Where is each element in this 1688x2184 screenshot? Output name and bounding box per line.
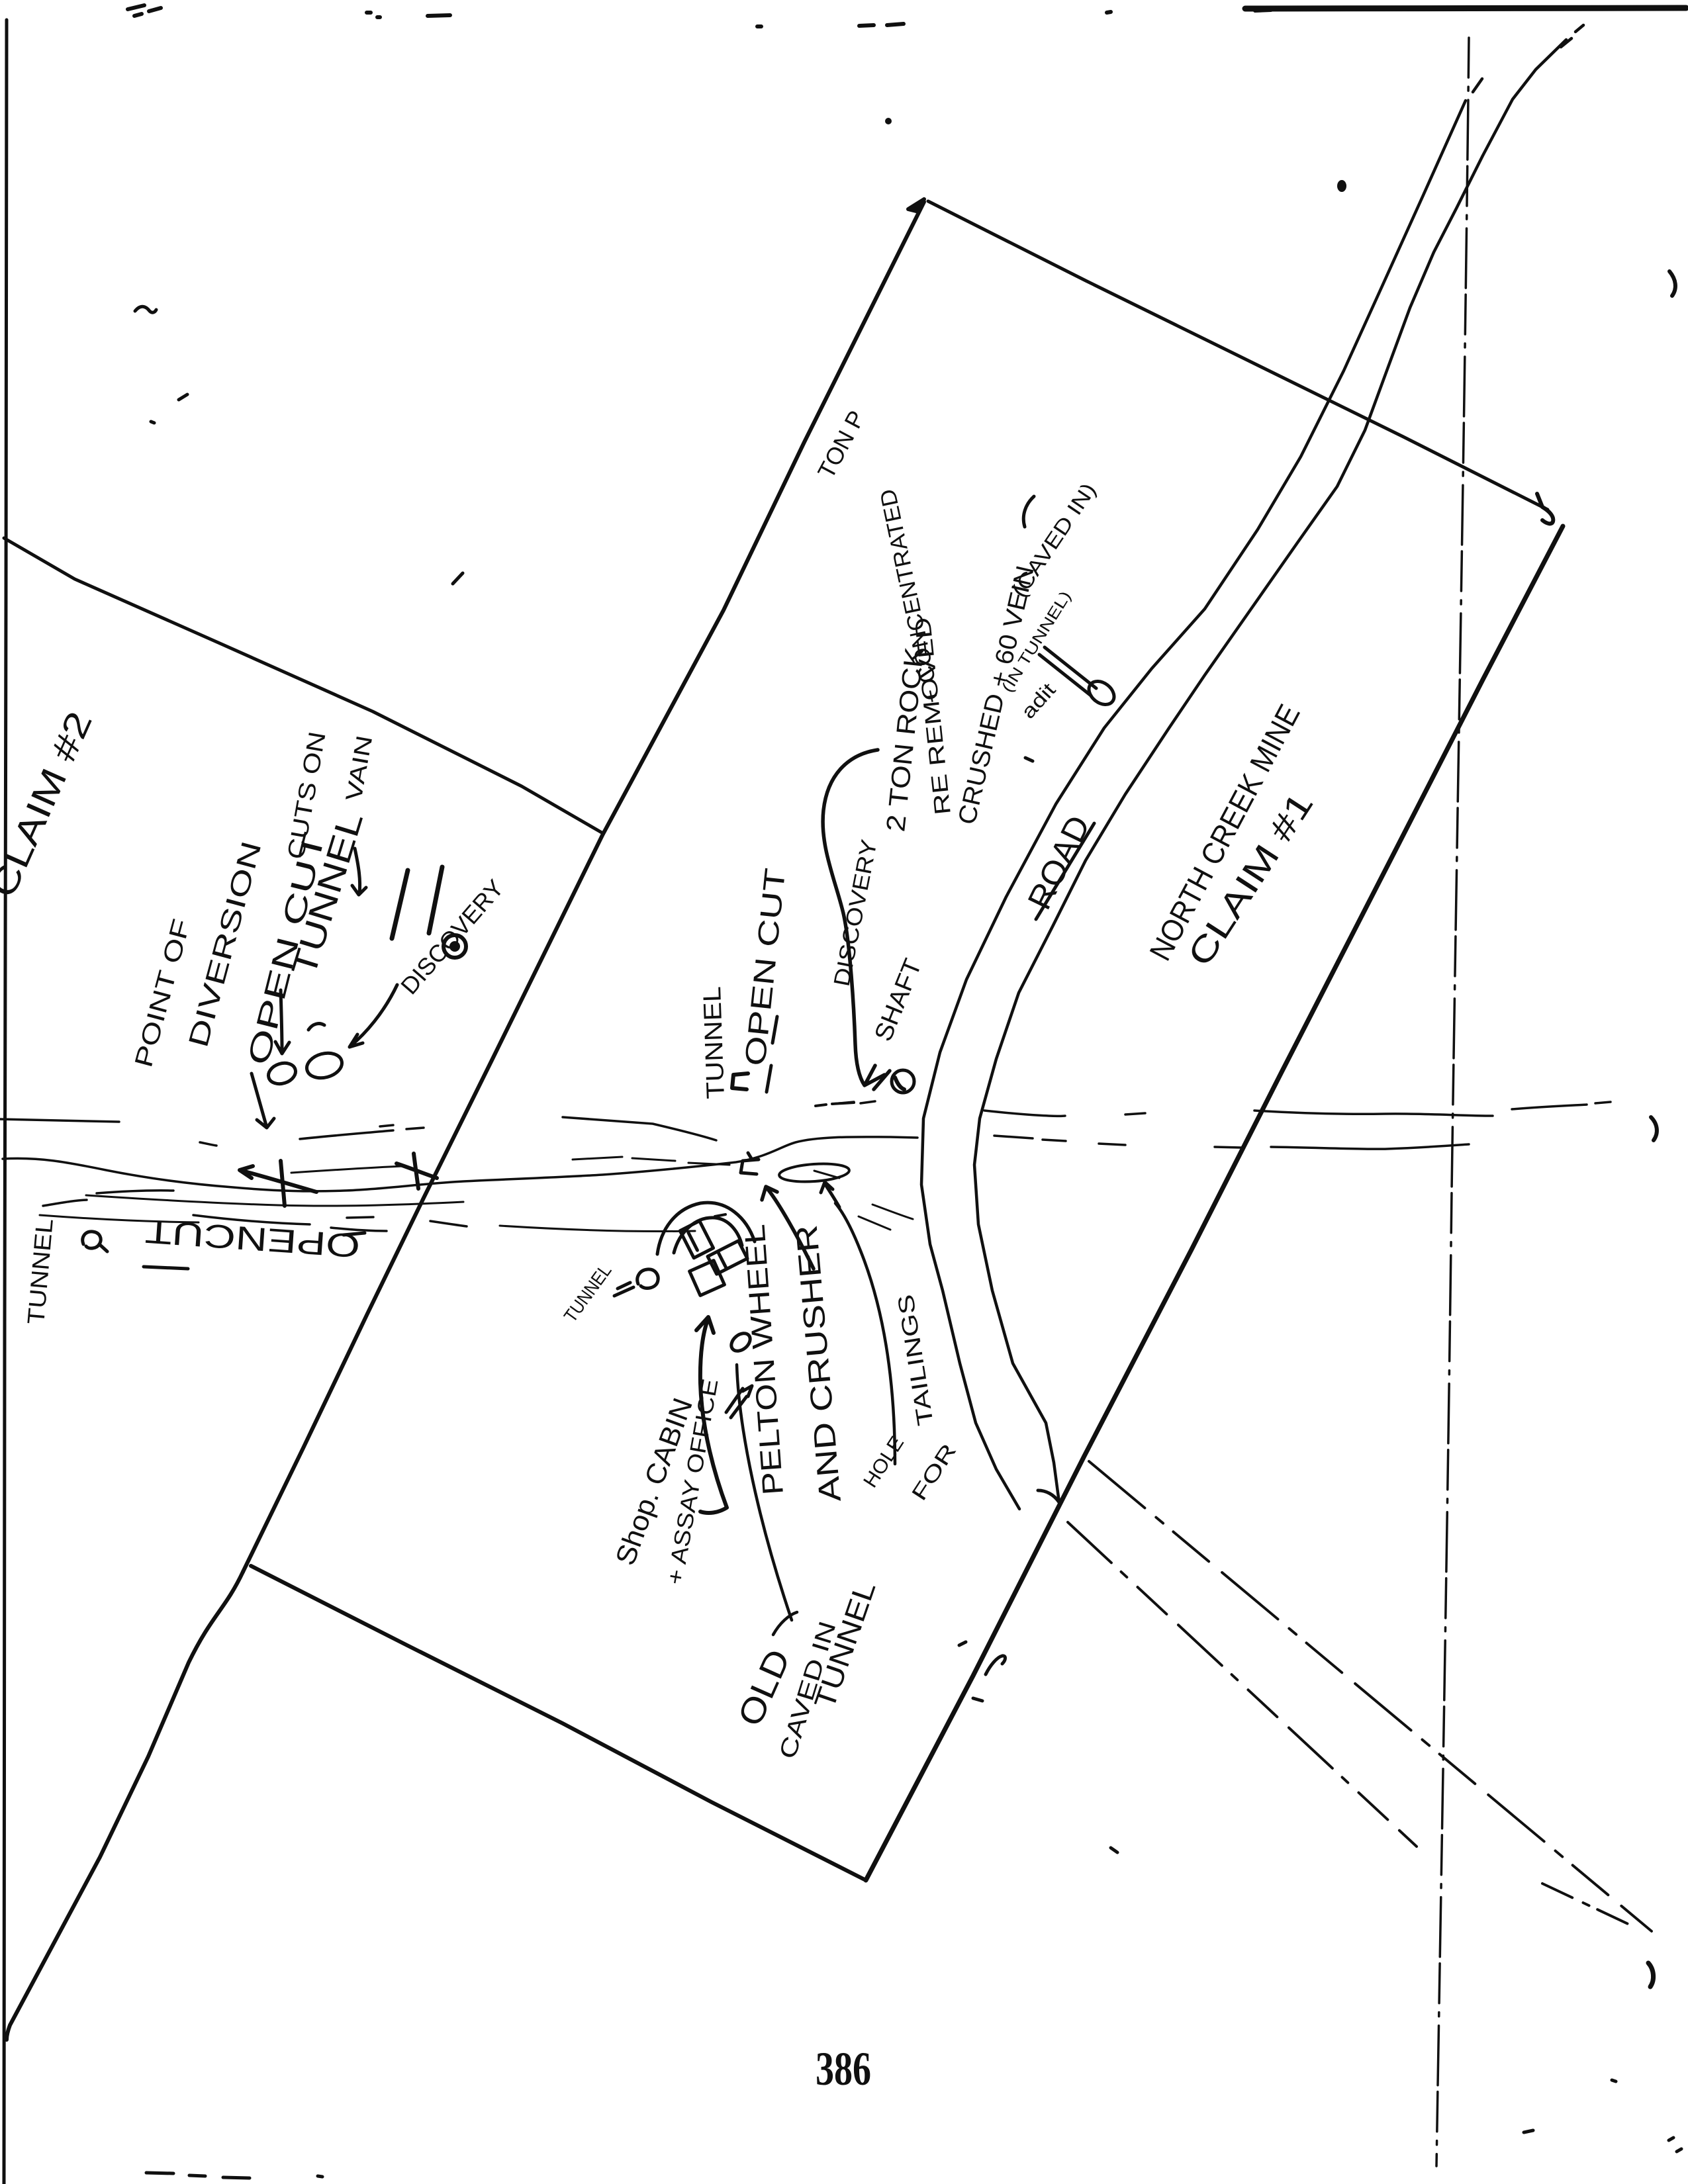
svg-text:386: 386 [816, 2042, 871, 2095]
svg-text:TUNNEL: TUNNEL [698, 986, 730, 1099]
